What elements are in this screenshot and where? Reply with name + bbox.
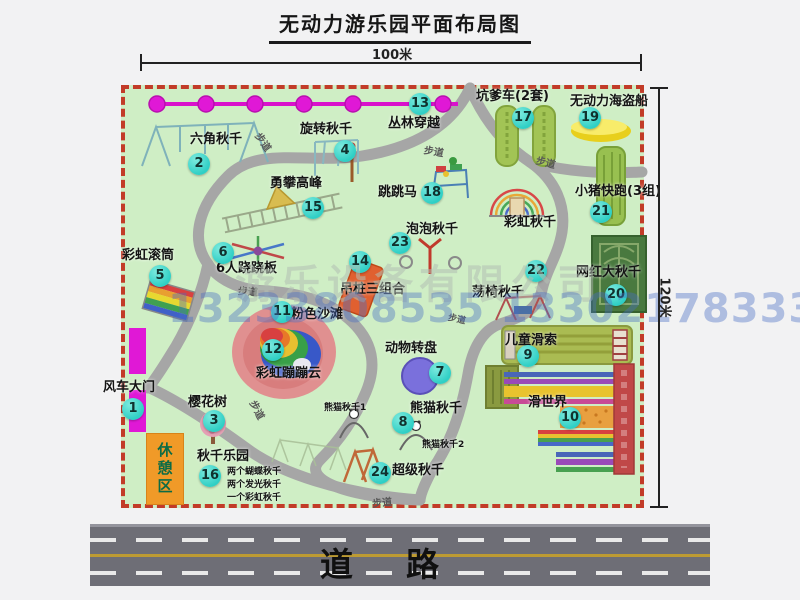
poi-label-1: 风车大门 (103, 381, 155, 395)
poi-badge-3: 3 (203, 410, 225, 432)
poi-badge-18: 18 (421, 182, 443, 204)
poi-label-5: 彩虹滚筒 (122, 249, 174, 263)
footpath-label-2: 步道 (423, 141, 445, 159)
poi-label-2: 六角秋千 (190, 133, 242, 147)
road-label: 道 路 (320, 538, 449, 586)
dimension-label-height: 120米 (657, 277, 676, 317)
swing-paradise-sub3: 一个彩虹秋千 (227, 494, 281, 504)
poi-badge-13: 13 (409, 93, 431, 115)
poi-label-13: 丛林穿越 (388, 117, 440, 131)
dimension-label-width: 100米 (372, 44, 412, 63)
road: 道 路 (90, 524, 710, 586)
poi-badge-9: 9 (517, 345, 539, 367)
park-plan-screenshot: 无动力游乐园平面布局图 100米 120米 (0, 0, 800, 600)
swing-paradise-sub1: 两个蝴蝶秋千 (227, 468, 281, 478)
poi-label-24: 超级秋千 (392, 464, 444, 478)
poi-label-3: 樱花树 (188, 396, 227, 410)
poi-badge-2: 2 (188, 153, 210, 175)
poi-badge-10: 10 (559, 407, 581, 429)
footpath-label-7: 步道 (371, 493, 392, 510)
dimension-tick-top-left (140, 54, 142, 71)
poi-label-12: 彩虹蹦蹦云 (256, 367, 321, 381)
poi-badge-19: 19 (579, 107, 601, 129)
poi-label-10: 滑世界 (528, 396, 567, 410)
poi-label-18: 跳跳马 (378, 186, 417, 200)
poi-label-15: 勇攀高峰 (270, 177, 322, 191)
poi-label-8: 熊猫秋千 (410, 402, 462, 416)
poi-badge-8: 8 (392, 412, 414, 434)
panda-swing-2-label: 熊猫秋千2 (422, 441, 464, 451)
rest-area-label: 休憩区 (155, 442, 176, 496)
poi-badge-7: 7 (429, 362, 451, 384)
swing-paradise-sub2: 两个发光秋千 (227, 481, 281, 491)
poi-badge-24: 24 (369, 462, 391, 484)
panda-swing-1-label: 熊猫秋千1 (324, 404, 366, 414)
poi-badge-17: 17 (512, 107, 534, 129)
dimension-tick-right-bottom (650, 506, 668, 508)
poi-badge-4: 4 (334, 140, 356, 162)
poi-label-21: 小猪快跑(3组) (575, 185, 661, 199)
poi-label-19: 无动力海盗船 (570, 95, 648, 109)
poi-label-4: 旋转秋千 (300, 123, 352, 137)
poi-badge-16: 16 (199, 465, 221, 487)
poi-badge-15: 15 (302, 197, 324, 219)
dimension-tick-right-top (650, 87, 668, 89)
poi-badge-5: 5 (149, 265, 171, 287)
rainbow-swing-label: 彩虹秋千 (504, 216, 556, 230)
page-title: 无动力游乐园平面布局图 (269, 8, 531, 44)
title-area: 无动力游乐园平面布局图 (0, 8, 800, 44)
poi-badge-6: 6 (212, 242, 234, 264)
poi-label-23: 泡泡秋千 (406, 223, 458, 237)
poi-badge-1: 1 (122, 398, 144, 420)
poi-badge-23: 23 (389, 232, 411, 254)
poi-badge-21: 21 (590, 201, 612, 223)
poi-label-7: 动物转盘 (385, 342, 437, 356)
poi-label-17: 坑爹车(2套) (476, 90, 549, 104)
poi-label-16: 秋千乐园 (197, 450, 249, 464)
poi-badge-12: 12 (262, 339, 284, 361)
dimension-tick-top-right (640, 54, 642, 71)
rest-area: 休憩区 (146, 433, 184, 505)
watermark-phone: 13233808535 13302178333 (168, 286, 800, 332)
